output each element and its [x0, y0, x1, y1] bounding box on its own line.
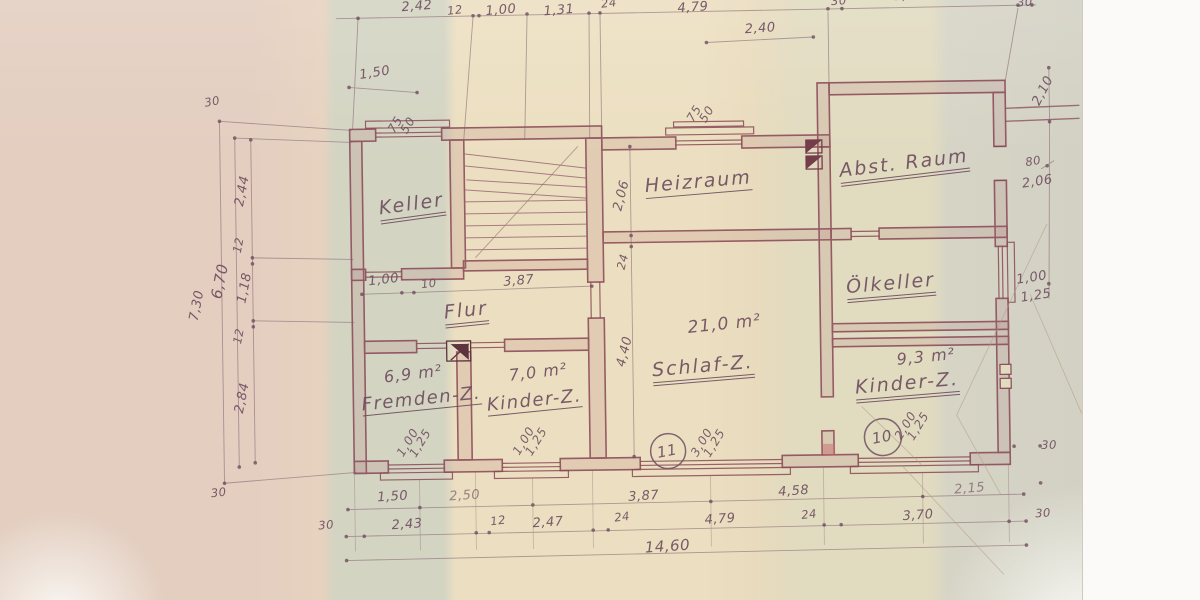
site-boundary-lines: [1005, 105, 1079, 121]
walls: [349, 80, 1010, 473]
door-threshold: [823, 444, 835, 456]
staircase: [464, 146, 588, 258]
paper-creases: [859, 223, 1084, 576]
floorplan-drawing: [0, 0, 1200, 600]
blueprint-photo: 2,42 12 1,00 1,31 24 4,79 30 3,70 30 1,5…: [0, 0, 1200, 600]
